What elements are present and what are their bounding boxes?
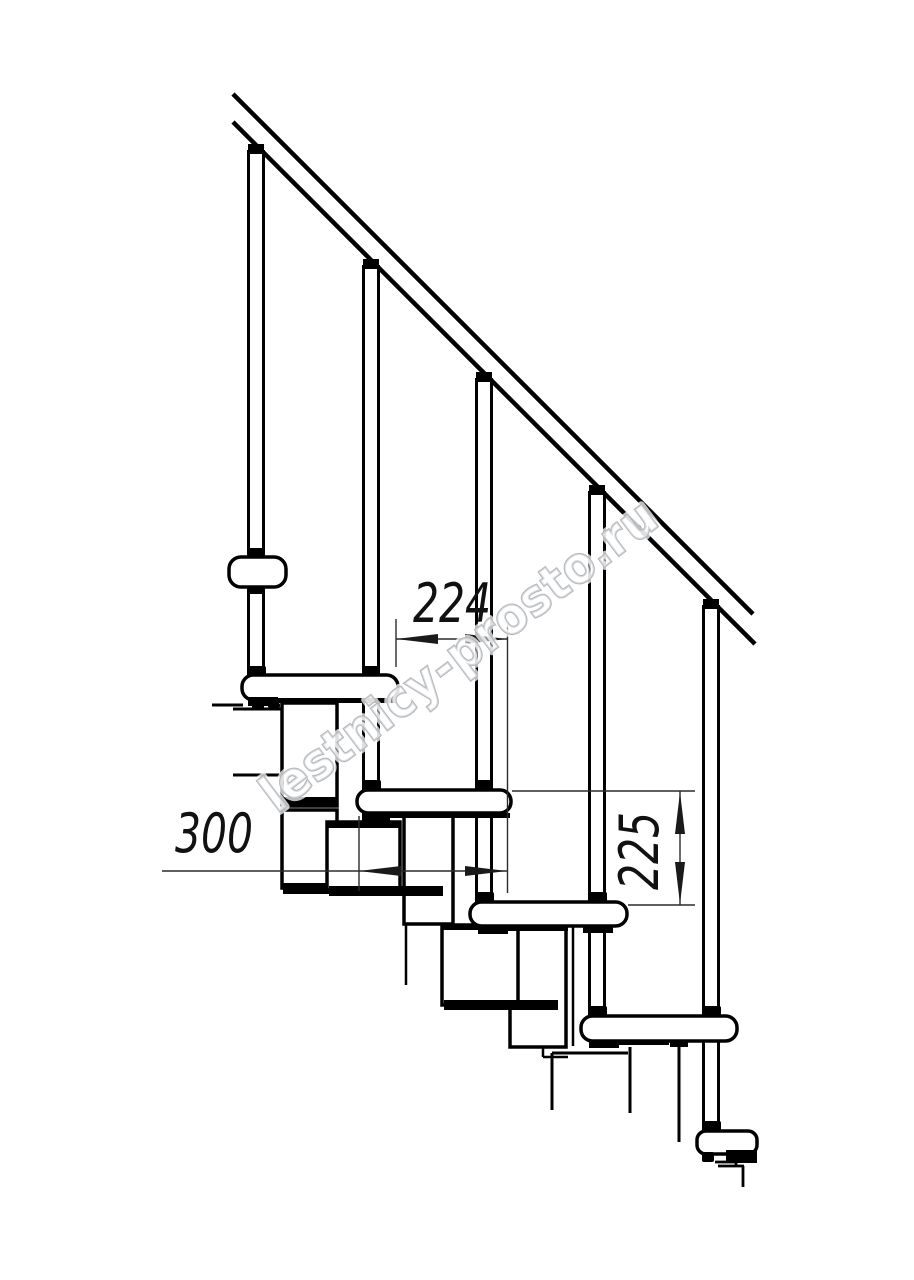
drawing-surface: 224 300 225 lestnicy-prosto.ru lestnicy-… (0, 0, 914, 1280)
tread-3 (470, 902, 627, 926)
bottom-cut-outline (715, 1162, 744, 1187)
baluster-1 (249, 150, 264, 677)
tread-2 (357, 790, 511, 813)
module-front-step3-bottom (444, 1000, 558, 1010)
nut-b2-on-t1 (362, 666, 380, 676)
rail-cap-5 (703, 599, 719, 609)
module-front-step2 (327, 822, 400, 890)
nut-b4-on-t3 (588, 892, 607, 902)
rail-cap-2 (363, 259, 379, 269)
nut-b1-on-t1 (248, 666, 266, 676)
module-front-step2-bottom (329, 886, 443, 896)
rail-cap-3 (476, 372, 492, 382)
handrail (233, 94, 755, 644)
nut-b3-on-t2 (475, 780, 493, 790)
upper-rail-end-cap (229, 557, 286, 587)
nut-b3-on-t3 (475, 892, 494, 902)
nut-b2-on-t2 (362, 780, 381, 790)
dimension-225-label: 225 (608, 812, 671, 890)
arrow-right-icon (465, 866, 507, 876)
rail-cap-1 (248, 144, 264, 154)
staircase-technical-drawing: 224 300 225 lestnicy-prosto.ru lestnicy-… (0, 0, 914, 1280)
upper-rail-end (229, 548, 286, 594)
nut-b4-on-t4 (588, 1006, 607, 1016)
nut-b5-on-t5 (703, 1121, 721, 1131)
module-under-step2-rear (404, 816, 453, 924)
baluster-5 (704, 605, 719, 1133)
tread-4 (581, 1016, 737, 1041)
bracket-t4 (589, 1040, 688, 1048)
arrow-up-icon (675, 792, 685, 834)
rail-cap-4 (589, 485, 605, 495)
module-front-step3 (442, 925, 518, 1005)
upper-rail-collar-bottom (250, 586, 264, 594)
dimension-300-label: 300 (175, 802, 253, 865)
nut-b5-on-t4 (702, 1006, 721, 1016)
arrow-down-icon (675, 862, 685, 904)
